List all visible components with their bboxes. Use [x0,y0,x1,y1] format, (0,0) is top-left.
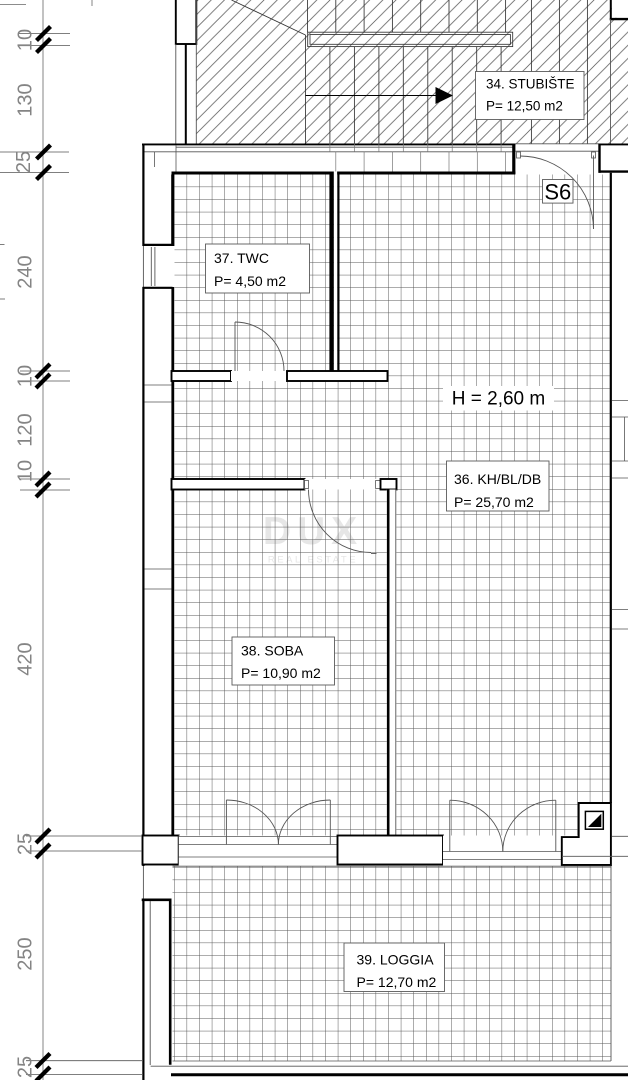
svg-text:130: 130 [15,83,37,116]
svg-text:420: 420 [15,642,37,675]
svg-text:37. TWC: 37. TWC [214,250,269,266]
svg-text:25: 25 [15,1056,37,1078]
svg-text:240: 240 [15,255,37,288]
svg-text:10: 10 [15,460,37,482]
svg-text:S6: S6 [544,180,571,205]
svg-text:250: 250 [15,937,37,970]
svg-text:P= 12,70 m2: P= 12,70 m2 [357,974,437,990]
svg-text:10: 10 [15,365,37,387]
svg-text:P= 25,70 m2: P= 25,70 m2 [454,494,534,510]
svg-text:120: 120 [15,413,37,446]
svg-text:P= 12,50 m2: P= 12,50 m2 [486,99,563,114]
svg-text:25: 25 [15,833,37,855]
svg-text:P= 4,50 m2: P= 4,50 m2 [214,273,286,289]
svg-text:25: 25 [13,151,35,173]
svg-text:34. STUBIŠTE: 34. STUBIŠTE [486,77,575,92]
svg-text:10: 10 [15,29,37,51]
svg-text:39. LOGGIA: 39. LOGGIA [357,952,435,968]
svg-text:H = 2,60 m: H = 2,60 m [452,389,545,410]
svg-text:36. KH/BL/DB: 36. KH/BL/DB [454,471,541,487]
svg-text:P= 10,90 m2: P= 10,90 m2 [241,665,321,681]
svg-text:38. SOBA: 38. SOBA [241,643,304,659]
